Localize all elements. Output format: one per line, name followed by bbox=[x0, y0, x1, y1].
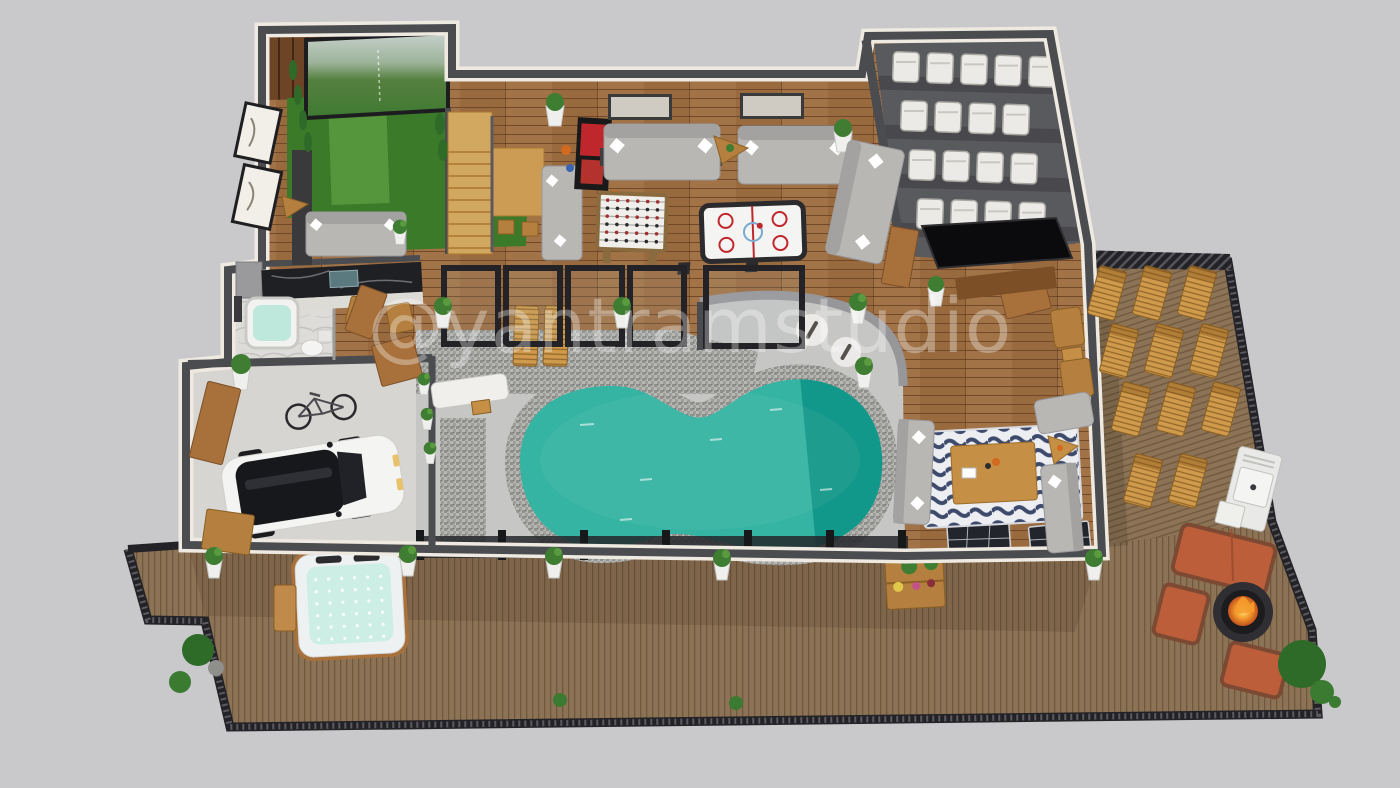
outdoor-armchair bbox=[1152, 583, 1209, 645]
wall-art-canvas bbox=[611, 97, 669, 117]
planter-plant-highlight bbox=[408, 546, 416, 554]
wall-art-canvas bbox=[743, 96, 801, 116]
bar-sink bbox=[329, 270, 358, 287]
theater-seat bbox=[934, 102, 961, 133]
theater-seat bbox=[1002, 104, 1029, 135]
appliance bbox=[236, 262, 262, 298]
garage-cabinet bbox=[201, 509, 254, 555]
theater-seat bbox=[926, 53, 953, 84]
theater-seat bbox=[994, 55, 1021, 86]
grass-tuft bbox=[729, 696, 743, 710]
hot-tub-headrest bbox=[315, 555, 341, 563]
stool bbox=[498, 220, 514, 234]
ball bbox=[566, 164, 574, 172]
table-plant bbox=[726, 144, 734, 152]
theater-seat bbox=[968, 103, 995, 134]
grass-tuft bbox=[1329, 696, 1341, 708]
planter-plant-highlight bbox=[427, 409, 433, 415]
grass-tuft bbox=[553, 693, 567, 707]
table-book bbox=[962, 468, 976, 478]
planter-plant-highlight bbox=[400, 220, 406, 226]
bathtub-water bbox=[253, 305, 291, 341]
table-item bbox=[985, 463, 991, 469]
theater-seat bbox=[960, 54, 987, 85]
vanity bbox=[318, 330, 332, 342]
side-table-item bbox=[1057, 445, 1063, 451]
basketball bbox=[561, 145, 571, 155]
planter-plant-highlight bbox=[554, 548, 562, 556]
stairs bbox=[448, 112, 492, 254]
planter-plant-highlight bbox=[214, 548, 222, 556]
sofa-back bbox=[604, 124, 720, 138]
planter bbox=[231, 354, 251, 390]
planter-plant-highlight bbox=[424, 374, 430, 380]
theater-seat bbox=[942, 151, 969, 182]
floorplan-svg: @yantramstudio bbox=[0, 0, 1400, 788]
planter-plant-highlight bbox=[1094, 550, 1102, 558]
theater-screen bbox=[922, 218, 1072, 268]
stool bbox=[522, 222, 538, 236]
deck-railing-left bbox=[128, 545, 186, 549]
rock bbox=[208, 660, 224, 676]
golf-fairway-strip bbox=[328, 107, 389, 205]
watermark-text: @yantramstudio bbox=[368, 281, 1013, 370]
hot-tub-step bbox=[274, 585, 296, 631]
theater-seat bbox=[976, 152, 1003, 183]
planter bbox=[546, 93, 564, 126]
sofa bbox=[1040, 463, 1084, 554]
planter-plant-highlight bbox=[722, 550, 730, 558]
planter-plant-highlight bbox=[430, 443, 436, 449]
mosaic-walkway-west bbox=[440, 418, 486, 546]
bathroom-mirror bbox=[234, 296, 242, 322]
sofa bbox=[893, 419, 934, 525]
theater-seat bbox=[908, 150, 935, 181]
table-bowl bbox=[992, 458, 1000, 466]
theater-seat bbox=[892, 52, 919, 83]
theater-seat bbox=[900, 101, 927, 132]
shrub bbox=[169, 671, 191, 693]
hot-tub bbox=[290, 546, 410, 662]
shrub bbox=[182, 634, 214, 666]
theater-seat bbox=[1010, 153, 1037, 184]
golf-screen bbox=[306, 33, 448, 118]
stair-landing-table bbox=[492, 148, 544, 216]
floorplan-rendering: @yantramstudio bbox=[0, 0, 1400, 788]
